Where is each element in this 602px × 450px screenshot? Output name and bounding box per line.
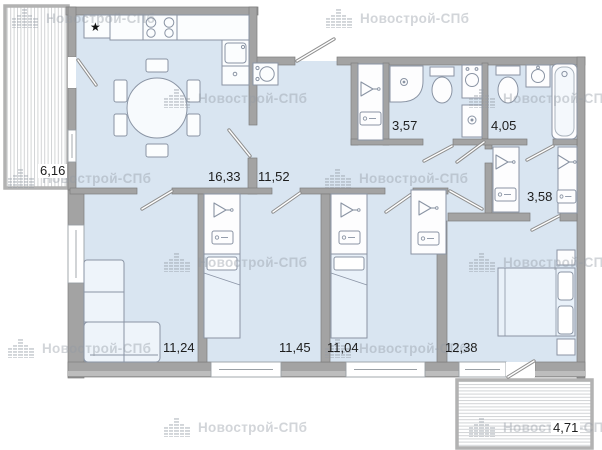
closet: [331, 194, 367, 254]
closet: [204, 194, 240, 254]
entrance-closet: [358, 64, 383, 140]
room-label-hallway: 11,52: [258, 170, 290, 184]
balcony-top-left: [5, 6, 68, 188]
balcony-bottom-right: [457, 380, 592, 448]
room-label-living: 11,24: [163, 341, 195, 355]
room-label-balcony-right: 4,71: [551, 421, 580, 435]
room-label-balcony-left: 6,16: [38, 164, 67, 178]
nightstand: [557, 250, 575, 265]
pillow: [558, 306, 573, 334]
room-label-wardrobe-hall: 3,58: [527, 190, 552, 204]
sink: [526, 65, 550, 87]
room-label-bath-tub: 4,05: [491, 119, 516, 133]
pillow: [207, 257, 237, 270]
room-label-kitchen: 16,33: [208, 170, 241, 184]
kitchen-counter-side: [222, 40, 249, 85]
kitchen-counter-top: [110, 15, 249, 40]
floor-plan-page: ★: [0, 0, 602, 450]
room-label-bath-shower: 3,57: [392, 119, 417, 133]
sink-unit: [462, 65, 482, 98]
room-label-bedroom3: 12,38: [445, 341, 478, 355]
floor-plan-graphic: ★: [0, 0, 602, 450]
toilet-bowl: [432, 77, 452, 103]
room-label-bedroom1: 11,45: [279, 341, 311, 355]
fridge-star: ★: [90, 20, 101, 34]
bedroom1-furniture: [204, 194, 240, 338]
washing-machine-icon: [253, 63, 278, 85]
pillow: [558, 272, 573, 300]
toilet-tank: [430, 67, 454, 76]
pillow: [334, 257, 364, 270]
toilet-tank: [496, 66, 520, 75]
nightstand: [557, 339, 575, 355]
toilet-bowl: [498, 77, 518, 103]
room-label-bedroom2: 11,04: [327, 341, 359, 355]
